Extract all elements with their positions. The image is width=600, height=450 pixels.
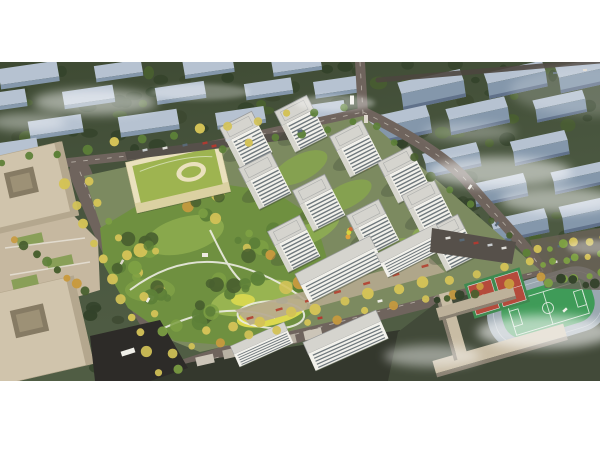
street-tree <box>151 310 158 317</box>
street-tree <box>523 249 531 257</box>
street-tree <box>373 123 381 131</box>
street-tree <box>587 273 593 279</box>
park-tree <box>241 249 256 264</box>
street-tree <box>110 137 119 146</box>
street-tree <box>309 304 320 315</box>
street-tree <box>219 145 227 153</box>
park-tree <box>210 213 221 224</box>
park-tree <box>198 209 208 219</box>
street-tree <box>170 132 178 140</box>
street-tree <box>223 122 232 131</box>
park-tree <box>128 261 142 275</box>
street-tree <box>244 330 253 339</box>
street-tree <box>188 343 195 350</box>
fog-cloud <box>295 95 375 111</box>
aerial-rendering-photo <box>0 62 600 381</box>
street-tree <box>83 145 93 155</box>
street-tree <box>569 275 578 284</box>
rendering-page <box>0 0 600 450</box>
street-tree <box>216 338 225 347</box>
street-tree <box>155 369 162 376</box>
forest-tree <box>154 75 169 85</box>
street-tree <box>559 239 568 248</box>
street-tree <box>168 349 178 359</box>
street-tree <box>504 279 514 289</box>
street-tree <box>286 307 296 317</box>
forest-tree <box>560 119 575 132</box>
park-tree <box>209 277 224 292</box>
fog-cloud <box>384 345 480 367</box>
forest-tree <box>321 65 333 74</box>
street-tree <box>72 201 81 210</box>
park-tree <box>144 240 154 250</box>
fog-cloud <box>428 157 572 187</box>
street-tree <box>137 328 145 336</box>
street-tree <box>42 257 52 267</box>
street-tree <box>332 315 341 324</box>
street-tree <box>138 135 147 144</box>
street-tree <box>304 319 311 326</box>
street-tree <box>471 290 480 299</box>
street-tree <box>434 297 441 304</box>
street-tree <box>549 258 556 265</box>
street-tree <box>93 199 101 207</box>
street-tree <box>99 254 108 263</box>
street-tree <box>59 178 70 189</box>
fog-cloud <box>33 89 157 115</box>
playground-equipment <box>346 230 351 235</box>
street-tree <box>394 284 404 294</box>
street-tree <box>54 151 61 158</box>
street-tree <box>245 139 253 147</box>
street-tree <box>488 218 494 224</box>
street-tree <box>361 307 368 314</box>
street-tree <box>272 326 281 335</box>
street-tree <box>254 117 262 125</box>
street-tree <box>272 134 280 142</box>
street-tree <box>350 118 357 125</box>
street-tree <box>444 295 451 302</box>
street-tree <box>72 279 82 289</box>
park-tree <box>205 306 215 316</box>
street-tree <box>585 254 591 260</box>
street-tree <box>202 326 210 334</box>
street-tree <box>228 322 238 332</box>
park-pavilion <box>202 253 208 257</box>
street-tree <box>455 290 465 300</box>
street-tree <box>341 297 350 306</box>
park-tree <box>235 237 242 244</box>
street-tree <box>445 276 454 285</box>
street-tree <box>526 257 534 265</box>
street-tree <box>540 262 546 268</box>
forest-tree <box>112 316 124 324</box>
street-tree <box>446 186 453 193</box>
street-tree <box>590 279 600 289</box>
street-tree <box>536 272 545 281</box>
street-tree <box>391 139 398 146</box>
street-tree <box>556 274 566 284</box>
street-tree <box>547 246 553 252</box>
street-tree <box>417 276 429 288</box>
fog-cloud <box>150 84 250 100</box>
forest-tree <box>86 302 101 313</box>
park-tree <box>240 278 251 289</box>
street-tree <box>563 257 570 264</box>
park-tree <box>195 300 205 310</box>
park-tree <box>250 271 265 286</box>
street-tree <box>116 294 126 304</box>
park-tree <box>121 232 135 246</box>
vehicle <box>364 115 368 123</box>
park-tree <box>226 278 241 293</box>
street-tree <box>473 270 481 278</box>
street-tree <box>158 326 168 336</box>
street-tree <box>54 266 61 273</box>
park-tree <box>112 263 123 274</box>
street-tree <box>362 288 374 300</box>
street-tree <box>90 240 98 248</box>
street-tree <box>115 234 122 241</box>
street-tree <box>25 152 33 160</box>
street-tree <box>255 317 266 328</box>
street-tree <box>63 275 70 282</box>
street-tree <box>107 274 118 285</box>
park-tree <box>245 230 253 238</box>
street-tree <box>283 110 290 117</box>
street-tree <box>544 279 553 288</box>
street-tree <box>389 301 398 310</box>
street-tree <box>534 245 542 253</box>
street-tree <box>571 254 579 262</box>
street-tree <box>324 126 331 133</box>
forest-tree <box>471 77 480 83</box>
aerial-rendering <box>0 62 600 381</box>
street-tree <box>422 295 429 302</box>
street-tree <box>410 153 418 161</box>
park-tree <box>152 248 159 255</box>
street-tree <box>174 365 183 374</box>
street-tree <box>19 241 28 250</box>
street-tree <box>476 283 483 290</box>
forest-tree <box>221 72 234 83</box>
street-tree <box>105 218 112 225</box>
street-tree <box>467 200 474 207</box>
park-tree <box>279 281 292 294</box>
street-tree <box>195 123 205 133</box>
forest-tree <box>144 66 154 79</box>
forest-tree <box>81 129 98 138</box>
street-tree <box>78 219 88 229</box>
street-tree <box>141 346 152 357</box>
street-tree <box>11 236 18 243</box>
street-tree <box>506 232 512 238</box>
street-tree <box>583 282 590 289</box>
street-tree <box>132 273 141 282</box>
street-tree <box>81 286 90 295</box>
street-tree <box>500 263 509 272</box>
street-tree <box>85 177 94 186</box>
street-tree <box>122 250 132 260</box>
playground-equipment <box>346 234 351 239</box>
fog-cloud <box>424 123 516 141</box>
street-tree <box>33 250 41 258</box>
park-tree <box>170 319 182 331</box>
street-tree <box>128 314 136 322</box>
